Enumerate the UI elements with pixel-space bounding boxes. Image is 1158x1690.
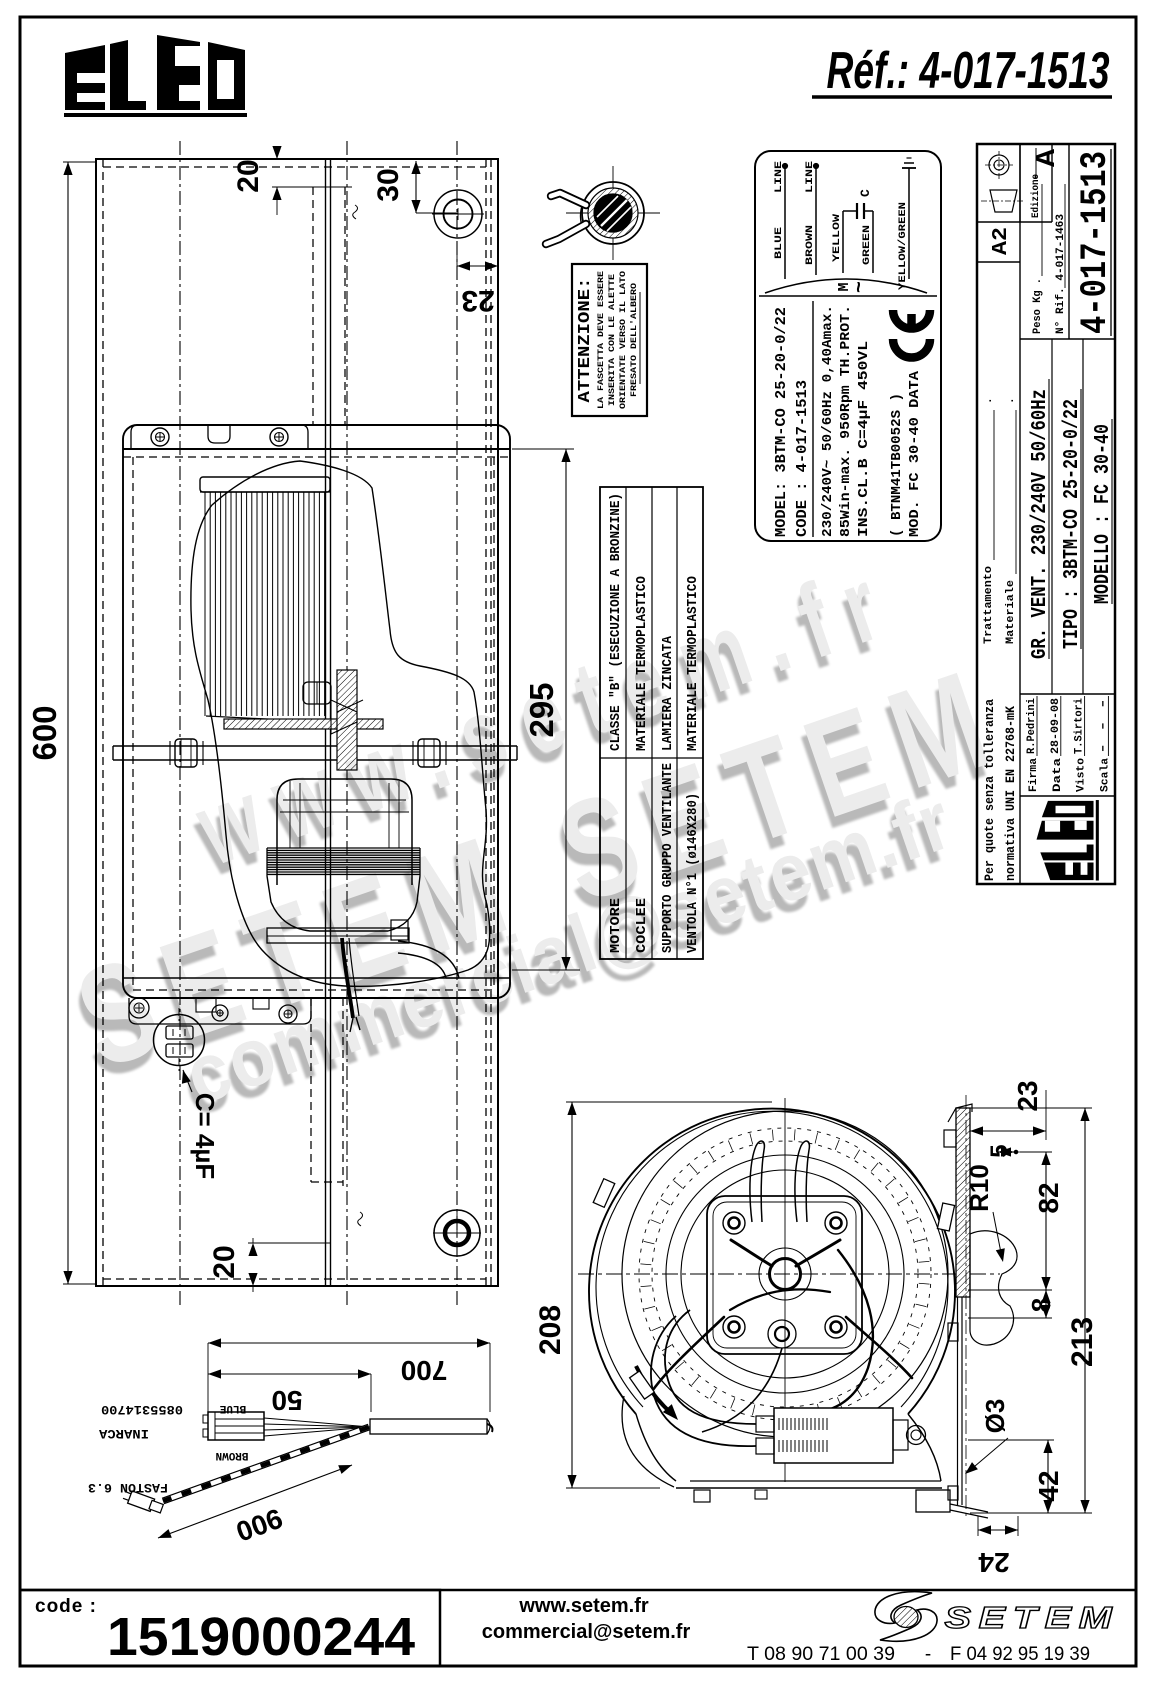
svg-text:600: 600 xyxy=(26,705,63,760)
svg-text:30: 30 xyxy=(372,168,405,201)
svg-text:213: 213 xyxy=(1066,1317,1099,1367)
svg-text:BLUE: BLUE xyxy=(219,1402,246,1414)
svg-text:-: - xyxy=(925,1644,931,1665)
svg-text:A: A xyxy=(1033,148,1063,167)
svg-text:BROWN: BROWN xyxy=(805,225,816,265)
svg-text:Edizione: Edizione xyxy=(1030,174,1042,218)
svg-text:YELLOW: YELLOW xyxy=(832,214,843,262)
svg-text:T.Sirtori: T.Sirtori xyxy=(1074,698,1086,754)
svg-text:FRESATO DELL'ALBERO: FRESATO DELL'ALBERO xyxy=(629,283,639,397)
svg-text:code :: code : xyxy=(35,1596,97,1617)
svg-text:85Win-max. 950Rpm TH.PROT.: 85Win-max. 950Rpm TH.PROT. xyxy=(839,305,854,537)
svg-text:28-09-08: 28-09-08 xyxy=(1050,698,1062,754)
svg-text:~: ~ xyxy=(849,281,872,293)
svg-text:R.Pedrini: R.Pedrini xyxy=(1026,698,1038,754)
svg-text:R10: R10 xyxy=(964,1164,994,1212)
svg-text:normativa UNI EN 22768-mK: normativa UNI EN 22768-mK xyxy=(1004,706,1018,881)
svg-text:20: 20 xyxy=(208,1245,241,1278)
svg-text:CODE : 4-017-1513: CODE : 4-017-1513 xyxy=(794,380,811,537)
svg-text:C: C xyxy=(858,189,873,197)
svg-text:INARCA: INARCA xyxy=(99,1426,149,1441)
svg-text:Peso Kg .: Peso Kg . xyxy=(1032,278,1044,334)
svg-text:www.setem.fr: www.setem.fr xyxy=(518,1595,649,1617)
svg-text:ATTENZIONE:: ATTENZIONE: xyxy=(575,278,594,403)
svg-text:8: 8 xyxy=(1026,1298,1056,1312)
svg-text:SETEM: SETEM xyxy=(945,1600,1120,1635)
svg-text:LINE: LINE xyxy=(774,161,785,193)
svg-text:A2: A2 xyxy=(990,227,1013,255)
svg-text:FASTON 6.3: FASTON 6.3 xyxy=(88,1480,168,1495)
svg-text:0855314700: 0855314700 xyxy=(101,1402,183,1417)
svg-text:YELLOW/GREEN: YELLOW/GREEN xyxy=(897,202,909,290)
svg-text:GREEN: GREEN xyxy=(862,225,873,265)
svg-text:- - -: - - - xyxy=(1097,698,1109,754)
svg-text:Visto: Visto xyxy=(1076,758,1088,792)
svg-text:700: 700 xyxy=(401,1355,448,1386)
svg-text:Materiale: Materiale xyxy=(1005,580,1017,644)
svg-text:1519000244: 1519000244 xyxy=(107,1607,415,1667)
svg-text:LA FASCETTA DEVE ESSERE: LA FASCETTA DEVE ESSERE xyxy=(597,271,606,409)
svg-text:ORIENTATE VERSO IL LATO: ORIENTATE VERSO IL LATO xyxy=(619,271,628,409)
svg-text:230/240V~ 50/60Hz 0,40Amax.: 230/240V~ 50/60Hz 0,40Amax. xyxy=(821,305,836,537)
svg-text:.: . xyxy=(983,397,995,404)
svg-text:82: 82 xyxy=(1033,1182,1064,1213)
svg-text:Data: Data xyxy=(1052,757,1064,792)
svg-text:208: 208 xyxy=(534,1305,567,1355)
svg-text:MODEL: 3BTM-CO 25-20-0/22: MODEL: 3BTM-CO 25-20-0/22 xyxy=(773,307,790,537)
svg-text:( BTNM41TB0052S ): ( BTNM41TB0052S ) xyxy=(890,393,905,537)
svg-text:23: 23 xyxy=(461,284,494,317)
svg-text:LINE: LINE xyxy=(805,161,816,193)
svg-text:INSERITA CON LE ALETTE: INSERITA CON LE ALETTE xyxy=(608,274,617,406)
svg-text:Trattamento: Trattamento xyxy=(983,566,995,644)
svg-text:23: 23 xyxy=(1012,1080,1043,1111)
svg-text:MOD. FC 30-40 DATA: MOD. FC 30-40 DATA xyxy=(908,370,923,537)
svg-text:24: 24 xyxy=(978,1547,1010,1578)
svg-text:Réf.: 4-017-1513: Réf.: 4-017-1513 xyxy=(827,42,1110,100)
svg-text:F 04 92 95 19 39: F 04 92 95 19 39 xyxy=(950,1644,1090,1665)
svg-text:Scala: Scala xyxy=(1099,758,1111,792)
svg-text:Ø3: Ø3 xyxy=(980,1399,1010,1434)
svg-text:50: 50 xyxy=(271,1385,302,1416)
svg-text:BLUE: BLUE xyxy=(774,227,785,259)
svg-text:Firma: Firma xyxy=(1028,758,1040,792)
svg-text:.: . xyxy=(1005,397,1017,404)
svg-text:20: 20 xyxy=(232,159,265,192)
svg-text:900: 900 xyxy=(232,1502,287,1547)
svg-text:commercial@setem.fr: commercial@setem.fr xyxy=(482,1621,691,1643)
svg-text:T 08 90 71 00 39: T 08 90 71 00 39 xyxy=(747,1644,895,1665)
svg-text:BROWN: BROWN xyxy=(215,1449,248,1461)
svg-text:INS.CL.B C=4µF 450VL: INS.CL.B C=4µF 450VL xyxy=(857,341,872,537)
